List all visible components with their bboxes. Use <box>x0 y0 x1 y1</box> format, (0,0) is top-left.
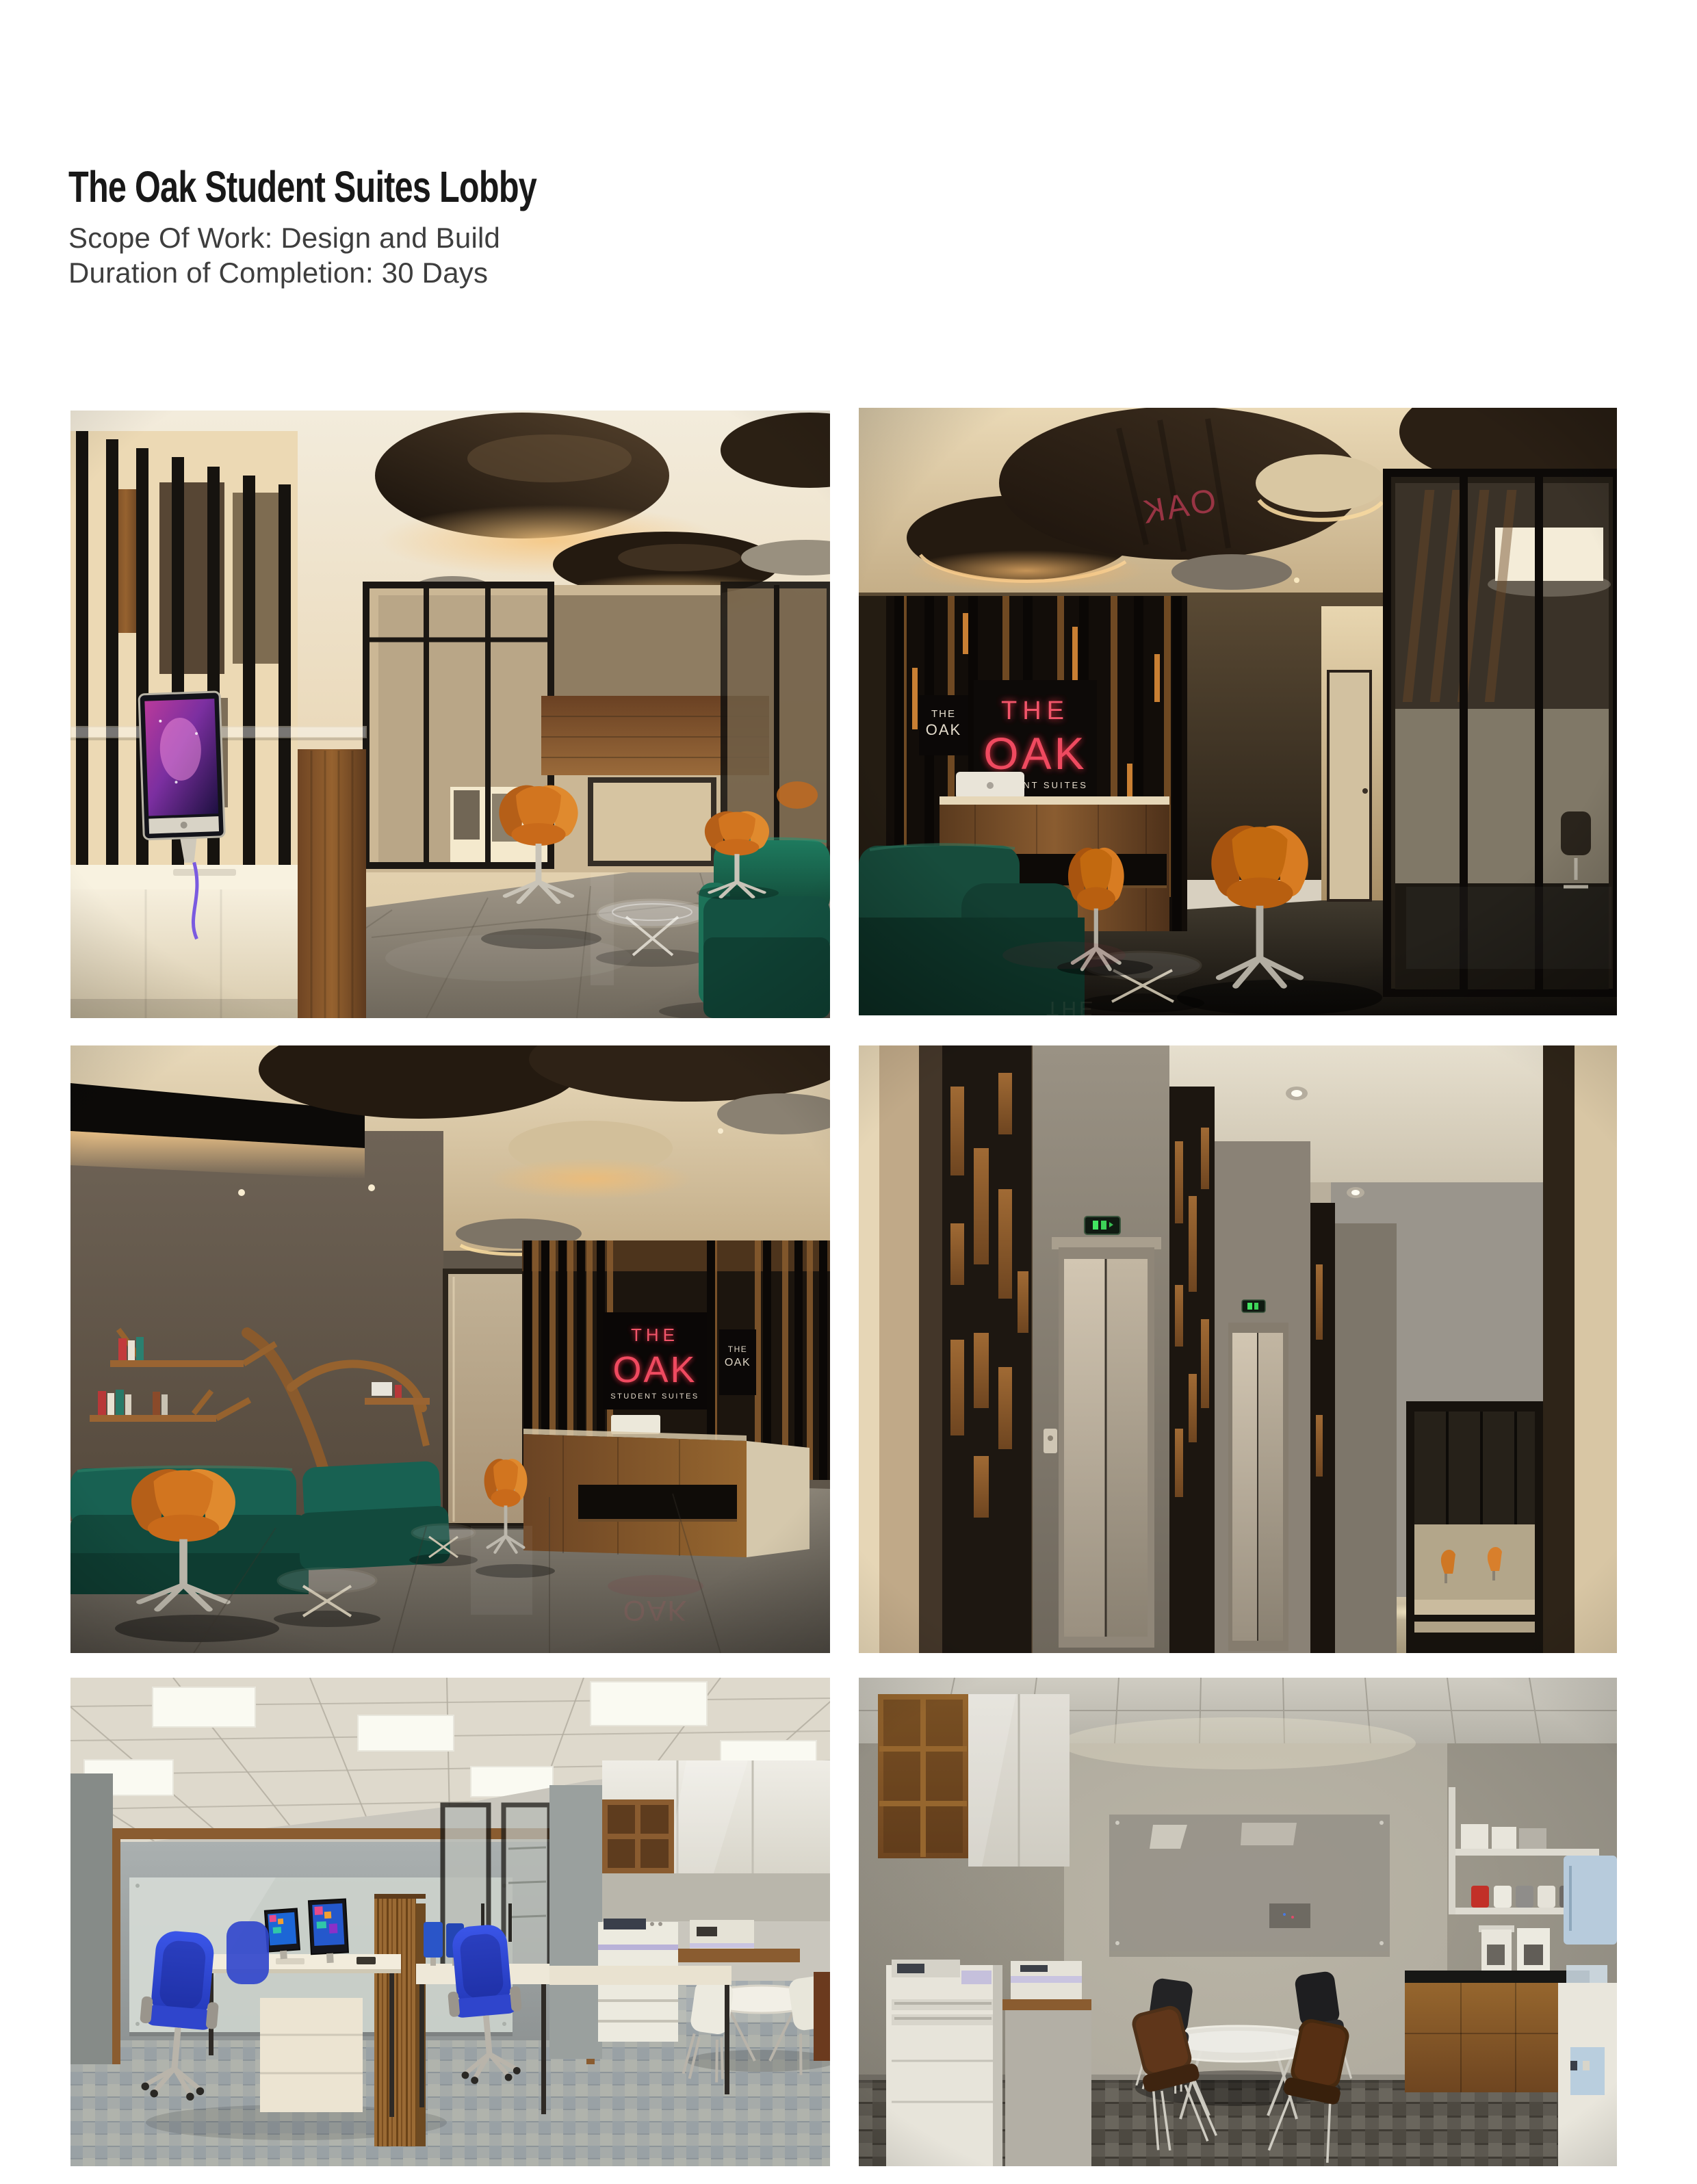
render-elevator-corridor <box>859 1045 1617 1653</box>
duration-line: Duration of Completion: 30 Days <box>68 255 684 290</box>
project-title: The Oak Student Suites Lobby <box>68 161 536 212</box>
desk-phone <box>357 1957 376 1964</box>
vignette-overlay <box>859 1678 1617 2166</box>
render-waiting-area-tree-shelf: THE THE OAK OAK STUDENT SUITES THE OAK <box>70 1045 830 1653</box>
project-details: Scope Of Work: Design and Build Duration… <box>68 220 684 290</box>
monitor-back <box>424 1922 443 1958</box>
portfolio-page: The Oak Student Suites Lobby Scope Of Wo… <box>0 0 1697 2184</box>
lobby-reception-scene <box>70 411 830 1018</box>
render-back-office-workstations <box>70 1678 830 2166</box>
office-chair <box>226 1921 269 1984</box>
pantry-scene <box>859 1678 1617 2166</box>
scope-of-work-line: Scope Of Work: Design and Build <box>68 220 684 255</box>
vignette-overlay <box>70 1045 830 1653</box>
wood-cube-shelf <box>602 1799 674 1873</box>
keyboard <box>276 1958 305 1964</box>
project-header: The Oak Student Suites Lobby Scope Of Wo… <box>68 161 684 290</box>
drawer-pedestal <box>260 1998 363 2112</box>
render-lobby-oak-sign: OAK <box>859 408 1617 1015</box>
render-pantry-meeting-room <box>859 1678 1617 2166</box>
render-lobby-reception-desk <box>70 411 830 1018</box>
vignette-overlay <box>70 411 830 1018</box>
waiting-area-scene: THE THE OAK OAK STUDENT SUITES THE OAK <box>70 1045 830 1653</box>
elevator-corridor-scene <box>859 1045 1617 1653</box>
cabinet-wall <box>602 1760 830 1921</box>
back-office-scene <box>70 1678 830 2166</box>
door-handle <box>508 1903 512 1942</box>
wood-divider-panel <box>374 1897 416 2146</box>
vignette-overlay <box>859 408 1617 1015</box>
lobby-oak-sign-scene: OAK <box>859 408 1617 1015</box>
brown-chair-edge <box>814 1972 830 2061</box>
left-wall-sliver <box>70 1773 113 2064</box>
wall-column <box>549 1785 602 2059</box>
vignette-overlay <box>859 1045 1617 1653</box>
